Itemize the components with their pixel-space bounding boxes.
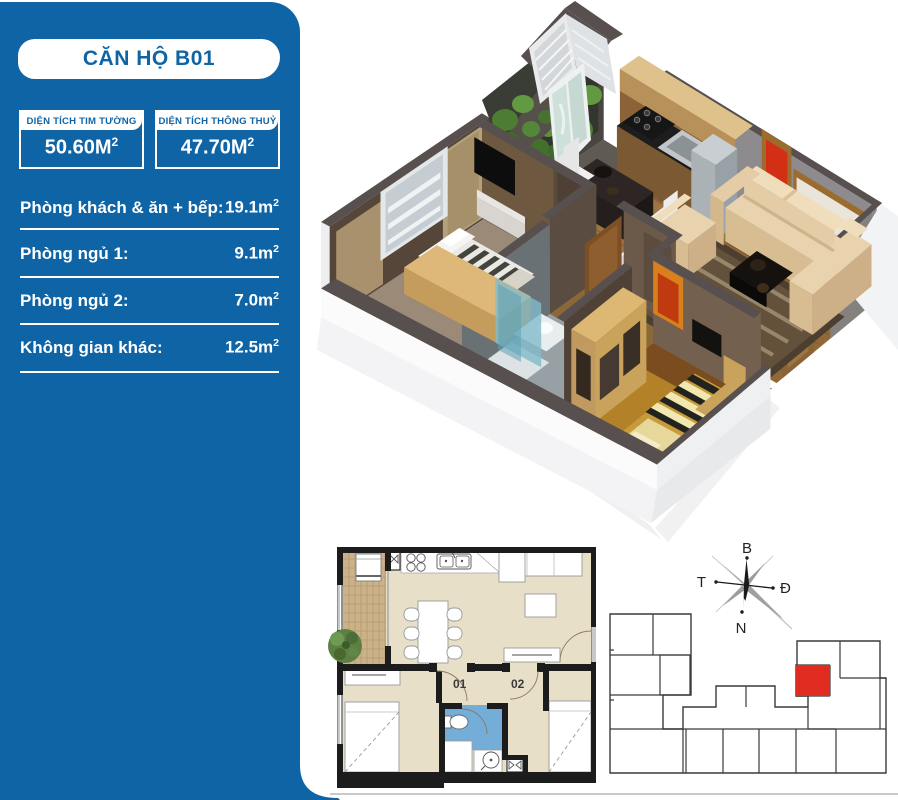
svg-text:Đ: Đ (780, 580, 791, 597)
svg-text:02: 02 (511, 677, 525, 691)
svg-text:N: N (736, 620, 747, 637)
svg-text:01: 01 (453, 677, 467, 691)
svg-text:B: B (742, 540, 752, 557)
svg-text:T: T (697, 574, 706, 591)
